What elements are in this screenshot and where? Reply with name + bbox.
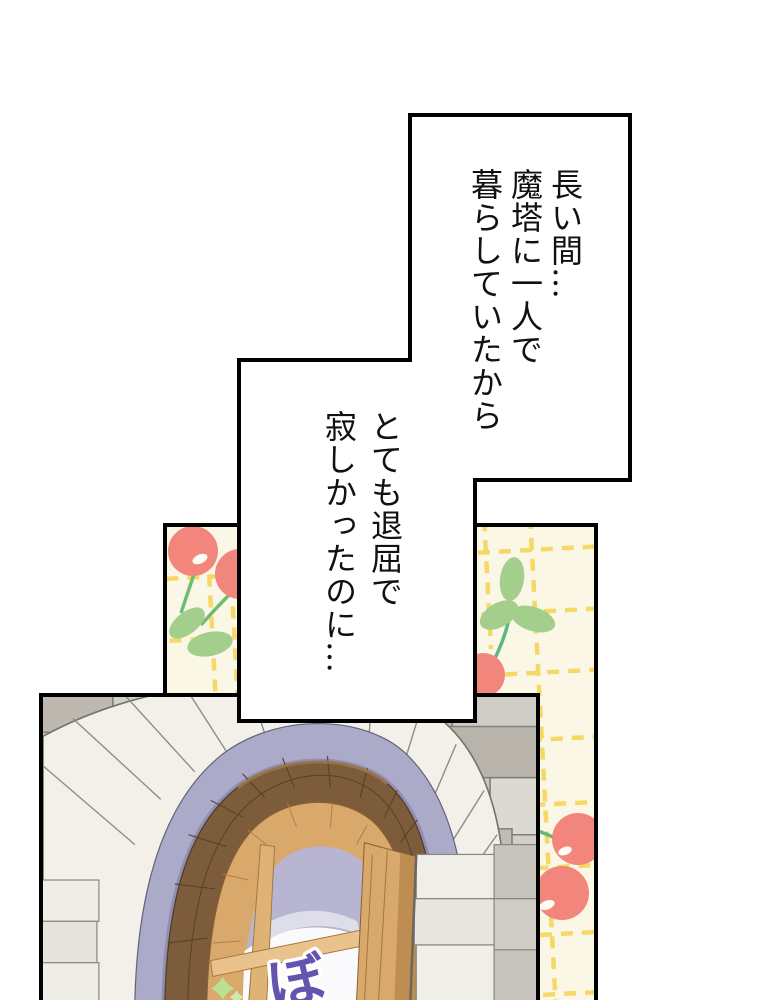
- comic-page: ぼ 長い間… 魔塔に一人で 暮らしていたから とても退屈で 寂しかったのに…: [0, 0, 760, 1000]
- wallpaper-panel-left: [163, 523, 241, 697]
- dialogue-line: 寂しかったのに…: [316, 410, 362, 710]
- speech-bubble-2-text: とても退屈で 寂しかったのに…: [312, 410, 408, 710]
- dialogue-line: とても退屈で: [362, 410, 408, 710]
- stone-window-panel: ぼ: [39, 693, 540, 1000]
- speech-bubble-1-text: 長い間… 魔塔に一人で 暮らしていたから: [459, 168, 585, 460]
- dialogue-line: 長い間…: [545, 168, 585, 460]
- dialogue-line: 魔塔に一人で: [505, 168, 545, 460]
- arched-window-scene: ぼ: [43, 697, 536, 1000]
- dialogue-line: 暮らしていたから: [465, 168, 505, 460]
- cherry-wallpaper: [167, 527, 237, 693]
